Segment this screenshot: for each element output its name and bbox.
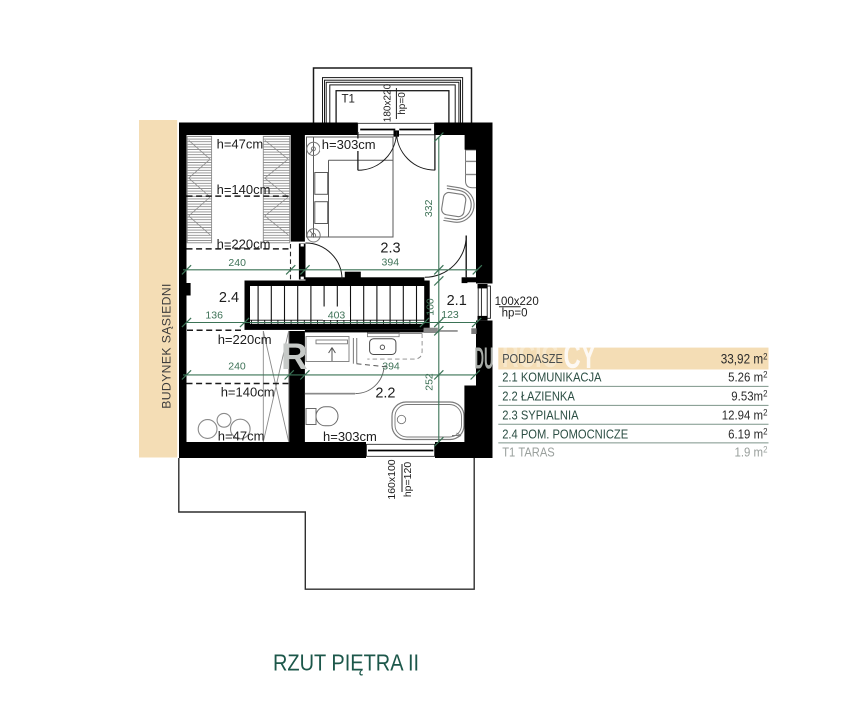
svg-text:PODDASZE: PODDASZE	[502, 351, 563, 366]
svg-text:DU: DU	[475, 341, 494, 376]
svg-text:R: R	[281, 336, 308, 377]
svg-text:h=140cm: h=140cm	[221, 385, 275, 400]
svg-text:h=47cm: h=47cm	[218, 429, 265, 444]
svg-text:2.2: 2.2	[375, 386, 395, 402]
svg-text:160x100: 160x100	[386, 459, 398, 499]
svg-text:6.19 m2: 6.19 m2	[728, 426, 768, 442]
svg-text:h=140cm: h=140cm	[217, 182, 271, 197]
svg-text:2.4 POM. POMOCNICZE: 2.4 POM. POMOCNICZE	[502, 427, 628, 442]
svg-text:2.3 SYPIALNIA: 2.3 SYPIALNIA	[502, 408, 579, 423]
svg-text:332: 332	[423, 199, 435, 217]
svg-text:h=303cm: h=303cm	[323, 429, 377, 444]
svg-text:1.9 m2: 1.9 m2	[734, 444, 767, 460]
svg-text:394: 394	[382, 257, 400, 269]
svg-text:hp=0: hp=0	[502, 308, 528, 320]
svg-text:2.4: 2.4	[219, 290, 239, 306]
svg-text:h=47cm: h=47cm	[217, 137, 264, 152]
svg-text:T1: T1	[342, 94, 355, 106]
svg-text:2.1 KOMUNIKACJA: 2.1 KOMUNIKACJA	[502, 370, 602, 385]
svg-text:180x220: 180x220	[383, 83, 394, 122]
svg-text:100: 100	[425, 298, 437, 316]
svg-text:2.2 ŁAZIENKA: 2.2 ŁAZIENKA	[502, 389, 575, 404]
svg-text:136: 136	[205, 310, 223, 322]
svg-text:5.26 m2: 5.26 m2	[728, 369, 768, 385]
svg-text:h=220cm: h=220cm	[217, 237, 271, 252]
svg-text:hp=120: hp=120	[402, 462, 414, 497]
svg-text:240: 240	[228, 360, 246, 372]
svg-text:403: 403	[328, 310, 346, 322]
svg-text:33,92 m2: 33,92 m2	[721, 351, 768, 367]
svg-text:T1 TARAS: T1 TARAS	[502, 445, 555, 460]
svg-text:394: 394	[382, 360, 400, 372]
svg-text:BUDYNEK SĄSIEDNI: BUDYNEK SĄSIEDNI	[159, 283, 173, 409]
svg-text:9.53m2: 9.53m2	[731, 388, 767, 404]
svg-text:2.3: 2.3	[380, 241, 400, 257]
svg-text:h=303cm: h=303cm	[322, 137, 376, 152]
svg-text:123: 123	[441, 309, 459, 321]
svg-text:2.1: 2.1	[447, 293, 467, 309]
svg-text:hp=0: hp=0	[397, 92, 408, 115]
svg-text:252: 252	[424, 373, 436, 391]
svg-text:h=220cm: h=220cm	[218, 332, 272, 347]
svg-text:240: 240	[228, 257, 246, 269]
svg-text:RZUT PIĘTRA II: RZUT PIĘTRA II	[273, 649, 419, 676]
svg-text:12.94 m2: 12.94 m2	[722, 407, 768, 423]
svg-text:100x220: 100x220	[495, 296, 539, 308]
